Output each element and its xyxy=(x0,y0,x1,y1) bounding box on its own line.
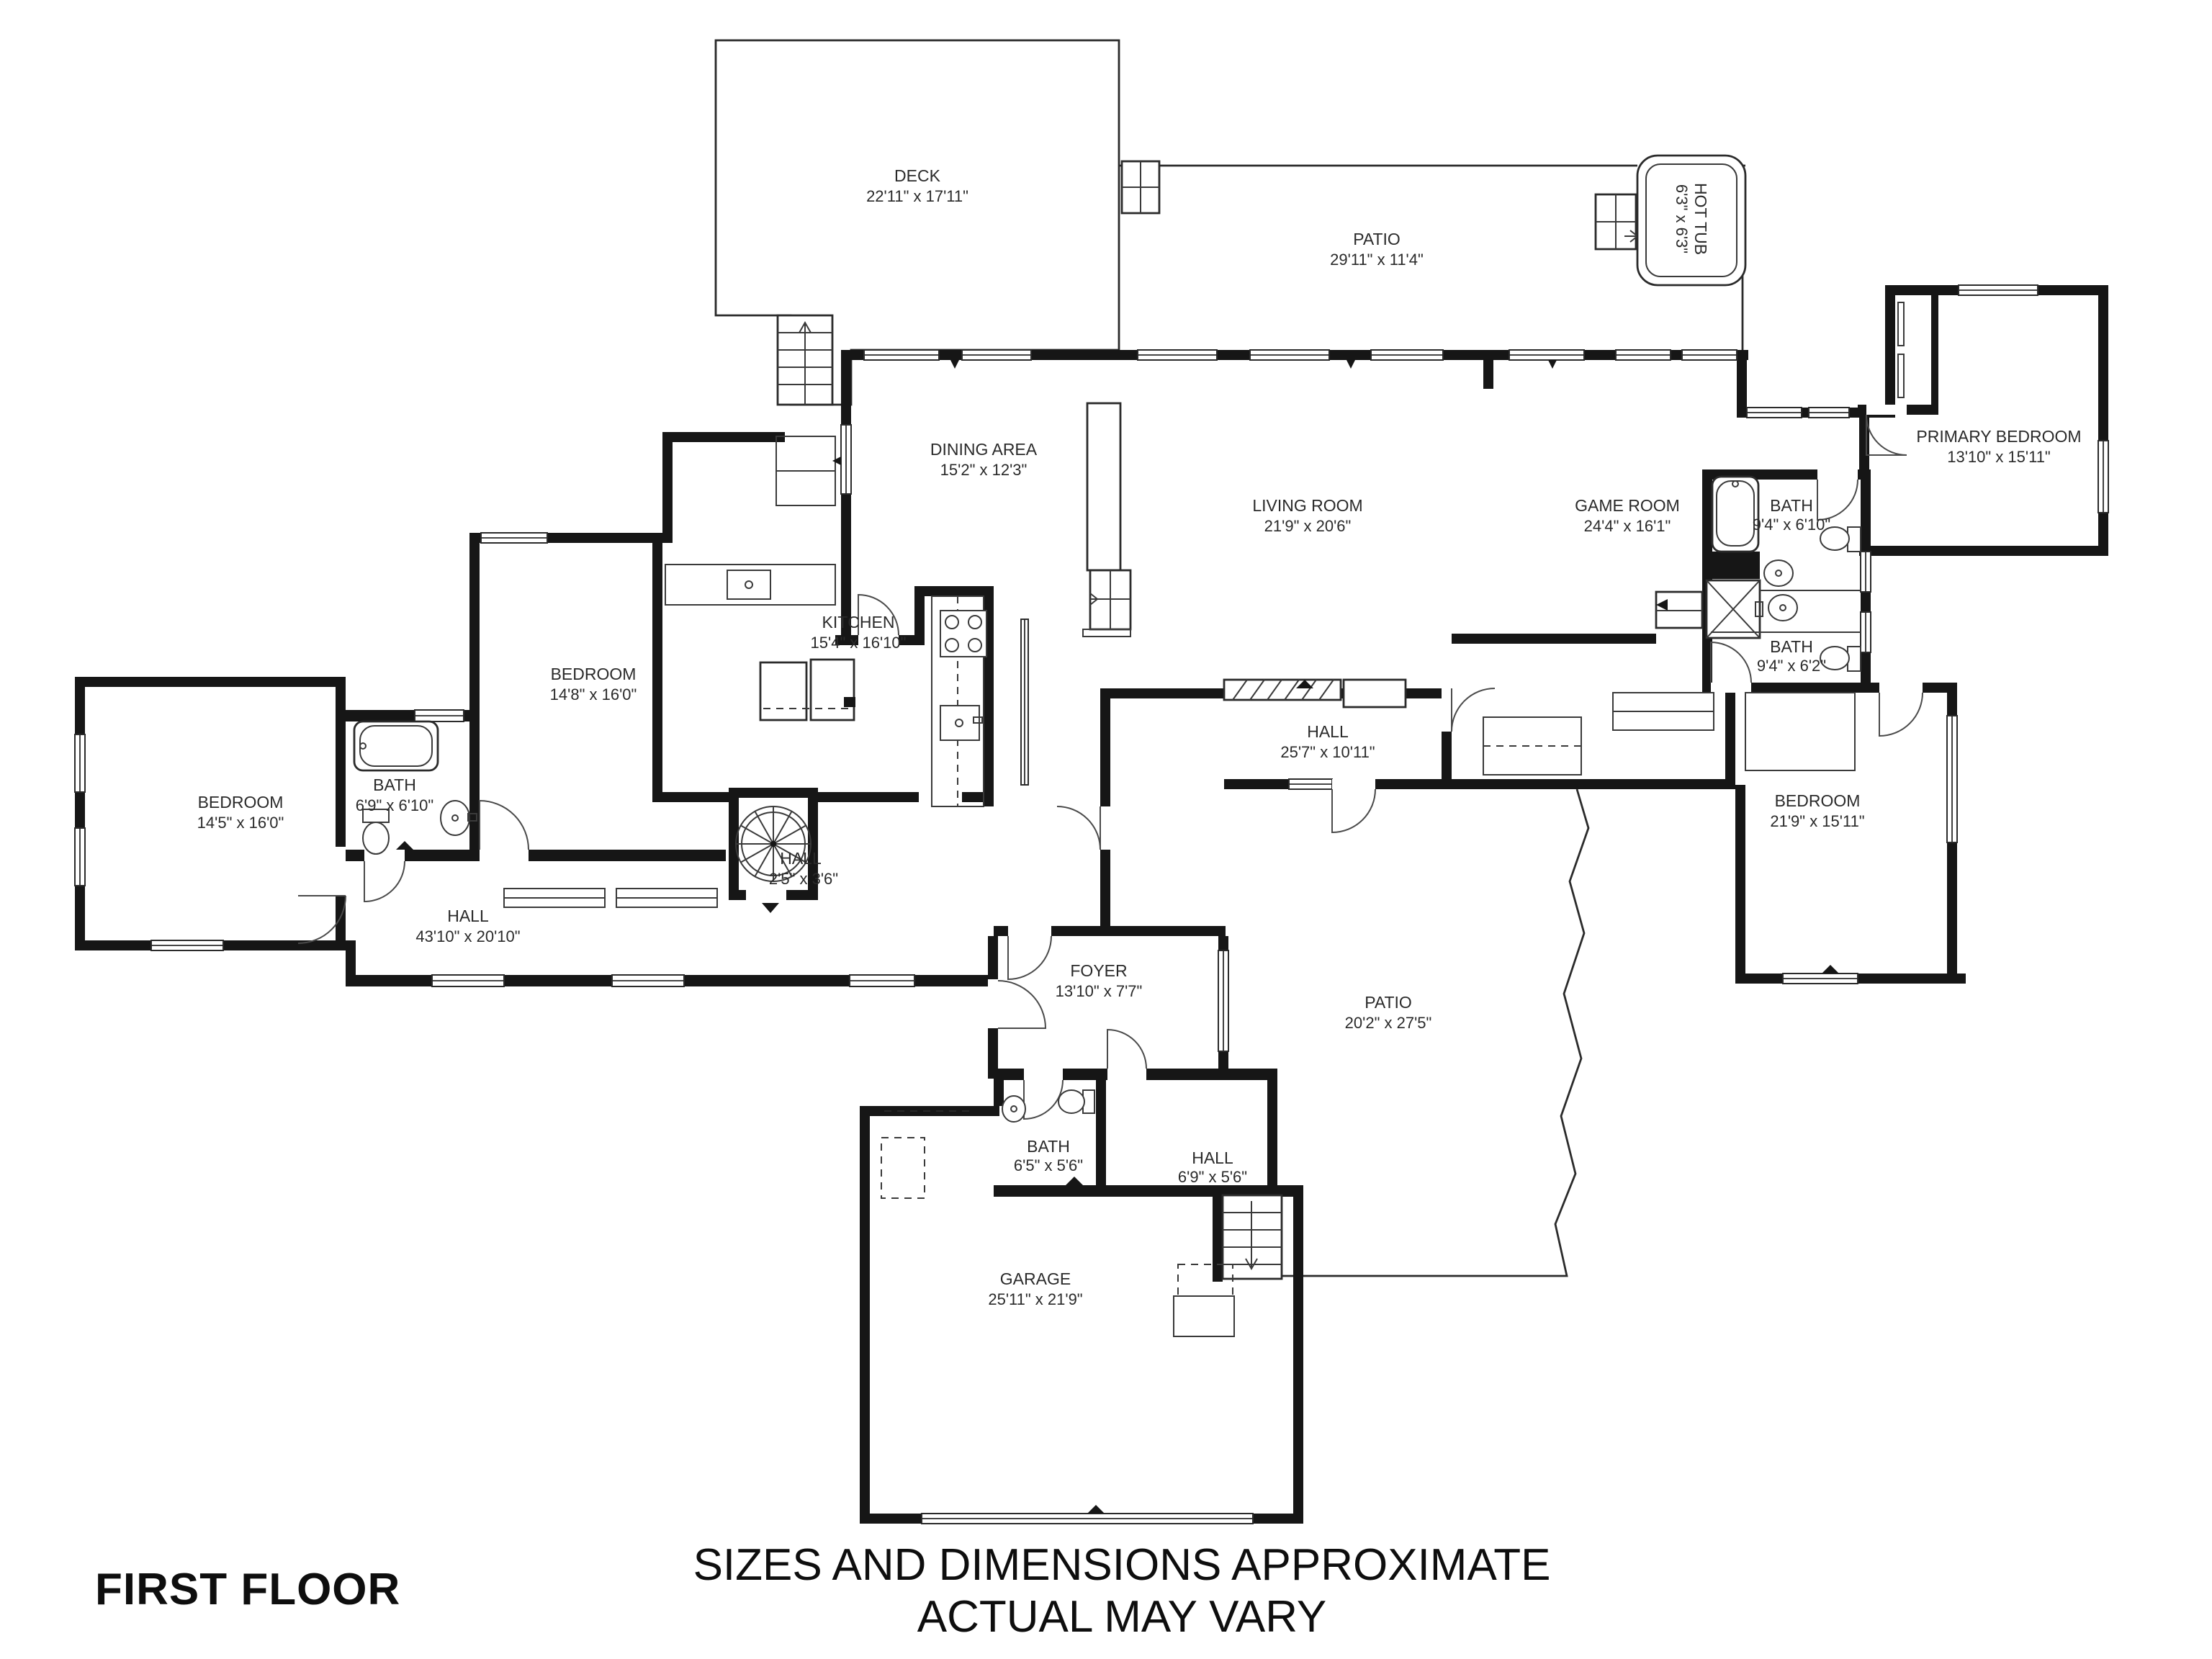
room-label-bath-primary-name: BATH xyxy=(1770,496,1813,515)
room-label-patio-top-name: PATIO xyxy=(1353,230,1401,248)
sink-icon xyxy=(1768,595,1797,621)
room-label-garage-dims: 25'11" x 21'9" xyxy=(988,1290,1082,1308)
stairwell-icon xyxy=(1223,1195,1282,1279)
room-label-hot-tub-dims: 6'3" x 6'3" xyxy=(1673,184,1691,253)
window-icon xyxy=(151,940,223,950)
window-icon xyxy=(1959,285,2038,295)
room-label-hall-left-dims: 43'10" x 20'10" xyxy=(415,927,520,945)
toilet-icon xyxy=(1058,1090,1094,1113)
window-icon xyxy=(1250,350,1329,360)
window-icon xyxy=(1682,350,1737,360)
hot-tub-steps-icon xyxy=(1596,194,1637,249)
window-icon xyxy=(1138,350,1217,360)
stove-icon xyxy=(940,611,986,657)
disclaimer-line-2: ACTUAL MAY VARY xyxy=(917,1592,1327,1642)
hall-closets xyxy=(504,889,717,907)
room-label-bedroom-right-dims: 21'9" x 15'11" xyxy=(1770,812,1864,830)
kitchen-counter xyxy=(932,596,986,806)
door-front xyxy=(988,979,1046,1028)
door-foyer-hall xyxy=(1008,926,1051,979)
door-primary-bedroom xyxy=(1866,405,1907,455)
room-label-game-room-name: GAME ROOM xyxy=(1575,496,1680,515)
window-icon xyxy=(612,975,684,986)
kitchen-sink-icon xyxy=(940,706,982,740)
room-label-primary-bedroom-name: PRIMARY BEDROOM xyxy=(1916,427,2081,446)
linen-closets xyxy=(1483,693,1714,775)
garage-door xyxy=(922,1514,1253,1524)
door-bedroom-right xyxy=(1879,683,1923,736)
room-label-bedroom-left-dims: 14'5" x 16'0" xyxy=(197,814,284,832)
fixtures xyxy=(354,156,1938,1336)
window-icon xyxy=(1218,950,1228,1051)
room-label-bedroom-mid-name: BEDROOM xyxy=(551,665,637,683)
room-label-hall-left-name: HALL xyxy=(447,907,489,925)
room-label-hall-stair-name: HALL xyxy=(780,849,822,868)
fireplace-icon xyxy=(1224,680,1406,707)
room-label-hot-tub: HOT TUB 6'3" x 6'3" xyxy=(1673,183,1710,255)
bathtub-icon xyxy=(354,721,438,770)
window-icon xyxy=(841,425,851,494)
room-label-hall-bottom-dims: 6'9" x 5'6" xyxy=(1178,1168,1247,1186)
room-label-bath-left-dims: 6'9" x 6'10" xyxy=(356,796,433,814)
room-label-game-room-dims: 24'4" x 16'1" xyxy=(1584,517,1671,535)
deck-stairs-icon xyxy=(778,315,832,405)
window-icon xyxy=(1021,619,1028,785)
door-bedroom-mid xyxy=(480,801,529,861)
room-label-bath-primary-dims: 9'4" x 6'10" xyxy=(1753,516,1830,534)
room-label-patio-top-dims: 29'11" x 11'4" xyxy=(1330,251,1424,269)
patio-steps-icon xyxy=(1122,161,1159,213)
door-hall-mid xyxy=(1332,779,1375,832)
floor-title: FIRST FLOOR xyxy=(95,1565,400,1614)
window-icon xyxy=(2098,441,2108,513)
room-label-kitchen-name: KITCHEN xyxy=(822,613,895,631)
disclaimer-line-1: SIZES AND DIMENSIONS APPROXIMATE xyxy=(693,1540,1551,1590)
room-label-foyer-dims: 13'10" x 7'7" xyxy=(1056,982,1143,1000)
room-label-kitchen-dims: 15'4" x 16'10" xyxy=(811,634,907,652)
room-label-living-name: LIVING ROOM xyxy=(1252,496,1362,515)
room-label-patio-bottom-name: PATIO xyxy=(1364,993,1412,1012)
outdoor-outlines xyxy=(716,40,1745,1276)
room-label-patio-bottom-dims: 20'2" x 27'5" xyxy=(1345,1014,1432,1032)
room-label-bath-bottom-dims: 6'5" x 5'6" xyxy=(1014,1156,1083,1174)
door-bath-primary xyxy=(1817,469,1858,520)
window-icon xyxy=(1861,612,1871,652)
sink-icon xyxy=(1002,1096,1025,1122)
window-icon xyxy=(962,350,1031,360)
room-label-hall-mid-name: HALL xyxy=(1307,722,1349,741)
window-icon xyxy=(432,975,504,986)
chimney-icon xyxy=(1083,403,1130,637)
window-icon xyxy=(481,533,547,543)
window-icon xyxy=(415,710,464,721)
room-label-living-dims: 21'9" x 20'6" xyxy=(1264,517,1352,535)
window-icon xyxy=(850,975,914,986)
door-bath-second xyxy=(1711,642,1751,693)
toilet-icon xyxy=(363,809,389,854)
room-label-hall-bottom-name: HALL xyxy=(1192,1148,1233,1167)
floor-plan-page: DECK 22'11" x 17'11" PATIO 29'11" x 11'4… xyxy=(0,0,2212,1659)
kitchen-west-counter xyxy=(665,565,835,605)
garage-storage xyxy=(881,1138,925,1198)
window-icon xyxy=(1371,350,1443,360)
window-icon xyxy=(1616,350,1671,360)
room-label-dining-name: DINING AREA xyxy=(930,440,1038,459)
window-icon xyxy=(75,828,85,886)
room-label-bath-second-dims: 9'4" x 6'2" xyxy=(1757,657,1826,675)
room-label-deck-name: DECK xyxy=(894,166,941,185)
footer: FIRST FLOOR SIZES AND DIMENSIONS APPROXI… xyxy=(95,1540,1550,1642)
window-icon xyxy=(1289,779,1332,789)
door-bath-bottom xyxy=(1024,1069,1063,1119)
room-label-bedroom-mid-dims: 14'8" x 16'0" xyxy=(550,685,637,703)
prep-sink-icon xyxy=(727,570,770,599)
window-icon xyxy=(1509,350,1584,360)
primary-closet xyxy=(1898,295,1938,405)
room-label-deck-dims: 22'11" x 17'11" xyxy=(866,187,968,205)
window-icon xyxy=(1947,716,1957,842)
room-label-hall-mid-dims: 25'7" x 10'11" xyxy=(1280,743,1375,761)
closet-shelves xyxy=(776,436,835,505)
door-foyer-hall-bottom xyxy=(1107,1030,1146,1080)
room-label-bath-bottom-name: BATH xyxy=(1027,1137,1070,1156)
bedroom-closet xyxy=(1745,693,1855,770)
door-hall-west xyxy=(1057,806,1110,850)
kitchen-island xyxy=(760,660,855,720)
room-label-hall-stair-dims: 2'5" x 3'6" xyxy=(769,870,838,888)
game-room-steps-icon xyxy=(1656,592,1702,628)
shower-icon xyxy=(1707,580,1763,638)
window-icon xyxy=(1861,552,1871,592)
window-icon xyxy=(1747,408,1802,418)
room-label-primary-bedroom-dims: 13'10" x 15'11" xyxy=(1947,448,2051,466)
door-bath-left xyxy=(364,850,405,902)
room-label-bath-left-name: BATH xyxy=(373,775,416,794)
window-icon xyxy=(75,734,85,792)
room-label-dining-dims: 15'2" x 12'3" xyxy=(940,461,1028,479)
window-icon xyxy=(864,350,939,360)
window-icon xyxy=(1809,408,1849,418)
window-icon xyxy=(1783,974,1858,984)
room-label-foyer-name: FOYER xyxy=(1070,961,1127,980)
sink-icon xyxy=(1764,560,1793,586)
floor-plan: DECK 22'11" x 17'11" PATIO 29'11" x 11'4… xyxy=(0,0,2212,1659)
room-label-garage-name: GARAGE xyxy=(1000,1269,1071,1288)
room-labels: DECK 22'11" x 17'11" PATIO 29'11" x 11'4… xyxy=(197,166,2082,1308)
door-closet-strip xyxy=(1442,688,1495,732)
patio-bottom-outline xyxy=(1282,789,1588,1276)
bathtub-icon xyxy=(1712,477,1758,552)
room-label-bedroom-left-name: BEDROOM xyxy=(198,793,284,811)
room-label-bath-second-name: BATH xyxy=(1770,637,1813,656)
room-label-hot-tub-name: HOT TUB xyxy=(1691,183,1710,255)
toilet-icon xyxy=(1820,647,1861,671)
room-label-bedroom-right-name: BEDROOM xyxy=(1775,791,1861,810)
